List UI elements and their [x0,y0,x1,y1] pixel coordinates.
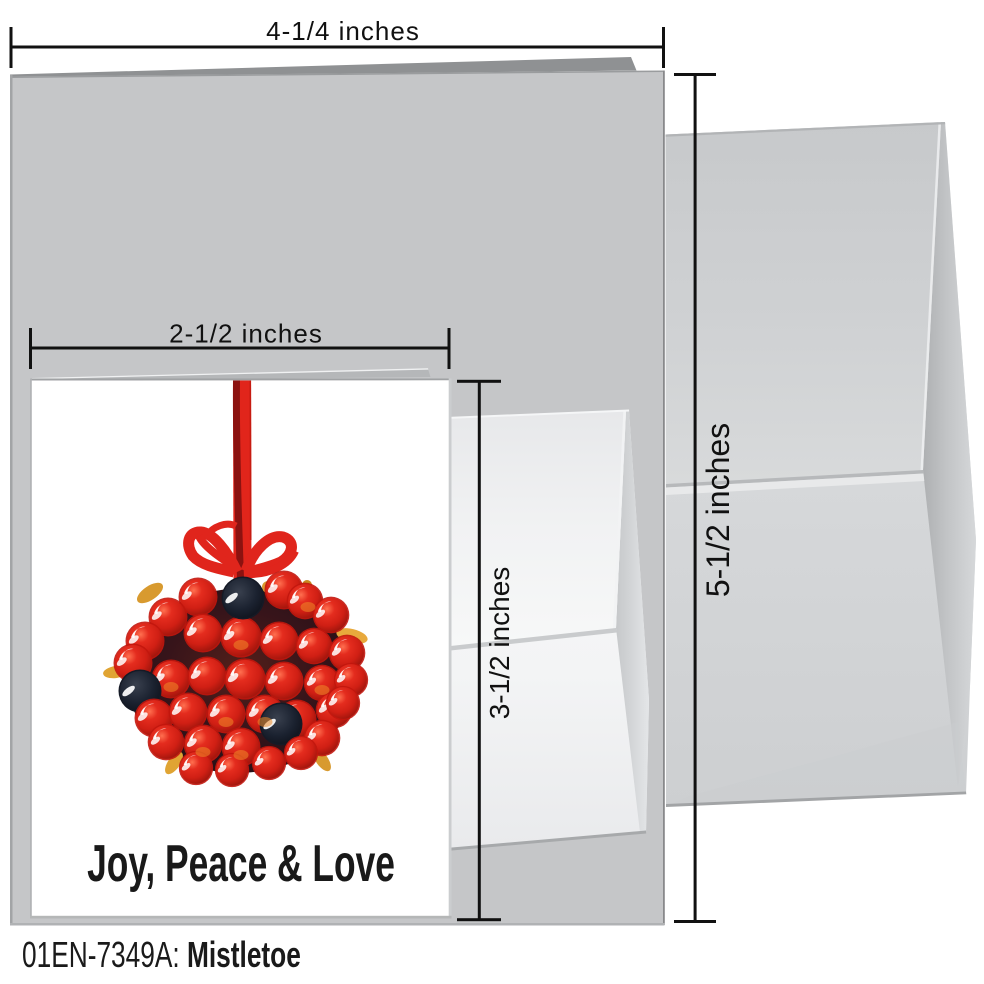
svg-text:5-1/2 inches: 5-1/2 inches [700,423,736,597]
svg-text:3-1/2 inches: 3-1/2 inches [484,567,515,720]
svg-text:2-1/2 inches: 2-1/2 inches [169,319,323,349]
svg-text:4-1/4 inches: 4-1/4 inches [266,16,420,46]
svg-text:01EN-7349A: Mistletoe: 01EN-7349A: Mistletoe [22,934,301,975]
svg-text:Joy, Peace & Love: Joy, Peace & Love [87,835,395,892]
